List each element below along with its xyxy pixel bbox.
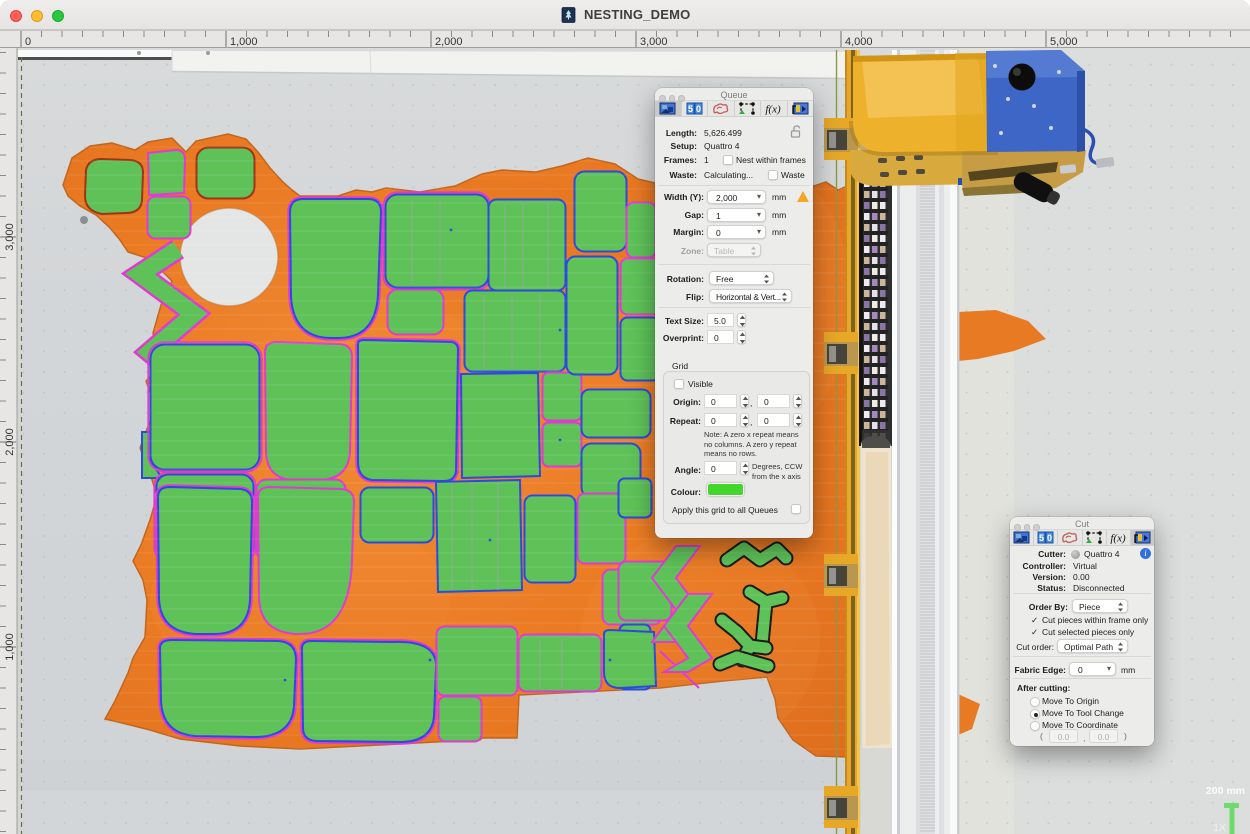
svg-text:1,000: 1,000 (4, 633, 16, 661)
svg-text:0: 0 (696, 104, 701, 114)
svg-text:4,000: 4,000 (845, 36, 873, 48)
svg-text:0: 0 (1047, 533, 1052, 543)
svg-text:f(x): f(x) (766, 104, 782, 116)
svg-text:5: 5 (1039, 533, 1044, 543)
svg-text:2,000: 2,000 (435, 36, 463, 48)
svg-text:0: 0 (25, 36, 31, 48)
svg-text:1X: 1X (1213, 822, 1226, 834)
svg-text:5,000: 5,000 (1050, 36, 1078, 48)
svg-text:3,000: 3,000 (4, 223, 16, 251)
svg-text:2,000: 2,000 (4, 428, 16, 456)
svg-text:f(x): f(x) (1110, 533, 1126, 545)
svg-text:5: 5 (688, 104, 693, 114)
svg-text:1,000: 1,000 (230, 36, 258, 48)
svg-text:200 mm: 200 mm (1206, 785, 1245, 797)
svg-text:3,000: 3,000 (640, 36, 668, 48)
